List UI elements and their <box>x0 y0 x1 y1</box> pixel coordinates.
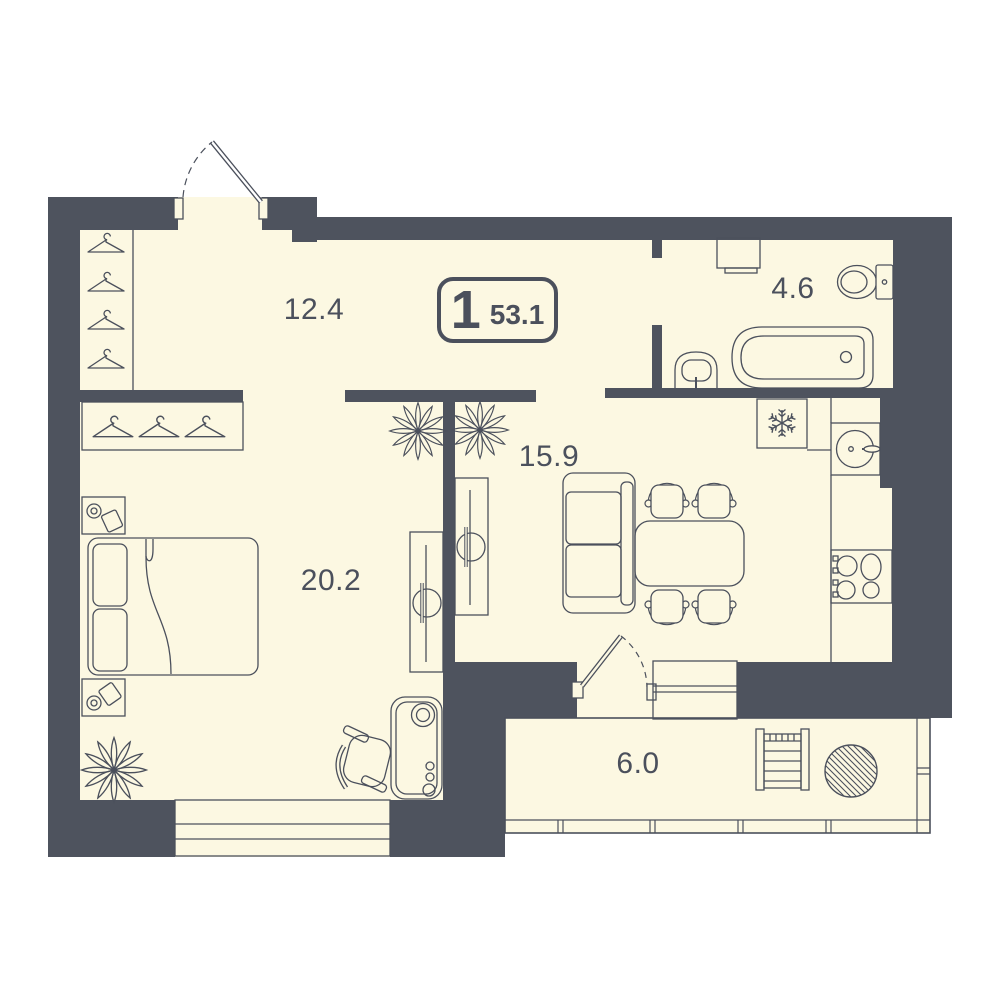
wall-top-right <box>317 217 952 240</box>
toilet <box>838 265 894 299</box>
wall-bedroom-bottom-left <box>48 800 175 857</box>
apartment-summary-badge: 1 53.1 <box>437 277 558 343</box>
wall-mid-right <box>345 390 536 402</box>
wall-left <box>48 197 80 857</box>
wall-bathroom-bottom <box>605 388 893 398</box>
wall-living-bottom <box>443 662 577 718</box>
rooms-count: 1 <box>451 283 481 337</box>
wall-bath-door-bottom <box>652 325 662 388</box>
wall-top-mid <box>262 197 317 230</box>
room-area-bathroom: 4.6 <box>771 272 814 306</box>
balcony-table <box>825 745 877 797</box>
wall-bath-door-top <box>652 237 662 258</box>
total-area: 53.1 <box>490 301 545 329</box>
floor-plan-canvas <box>0 0 1000 1000</box>
room-area-living: 15.9 <box>519 440 579 474</box>
room-area-balcony: 6.0 <box>616 747 659 781</box>
wall-mid-left <box>80 390 243 402</box>
door-swing-arc <box>183 142 212 197</box>
wall-right-kitchen-upper <box>880 398 952 488</box>
room-area-bedroom: 20.2 <box>301 564 361 598</box>
wall-bedroom-living <box>443 400 455 662</box>
wall-step <box>292 230 317 242</box>
floor-plan-page: 12.4 4.6 15.9 20.2 6.0 1 53.1 <box>0 0 1000 1000</box>
wall-right-bathroom <box>893 240 952 398</box>
room-area-hallway: 12.4 <box>284 293 344 327</box>
wall-right-kitchen-lower <box>892 488 952 663</box>
wall-bottom-right <box>737 662 952 718</box>
